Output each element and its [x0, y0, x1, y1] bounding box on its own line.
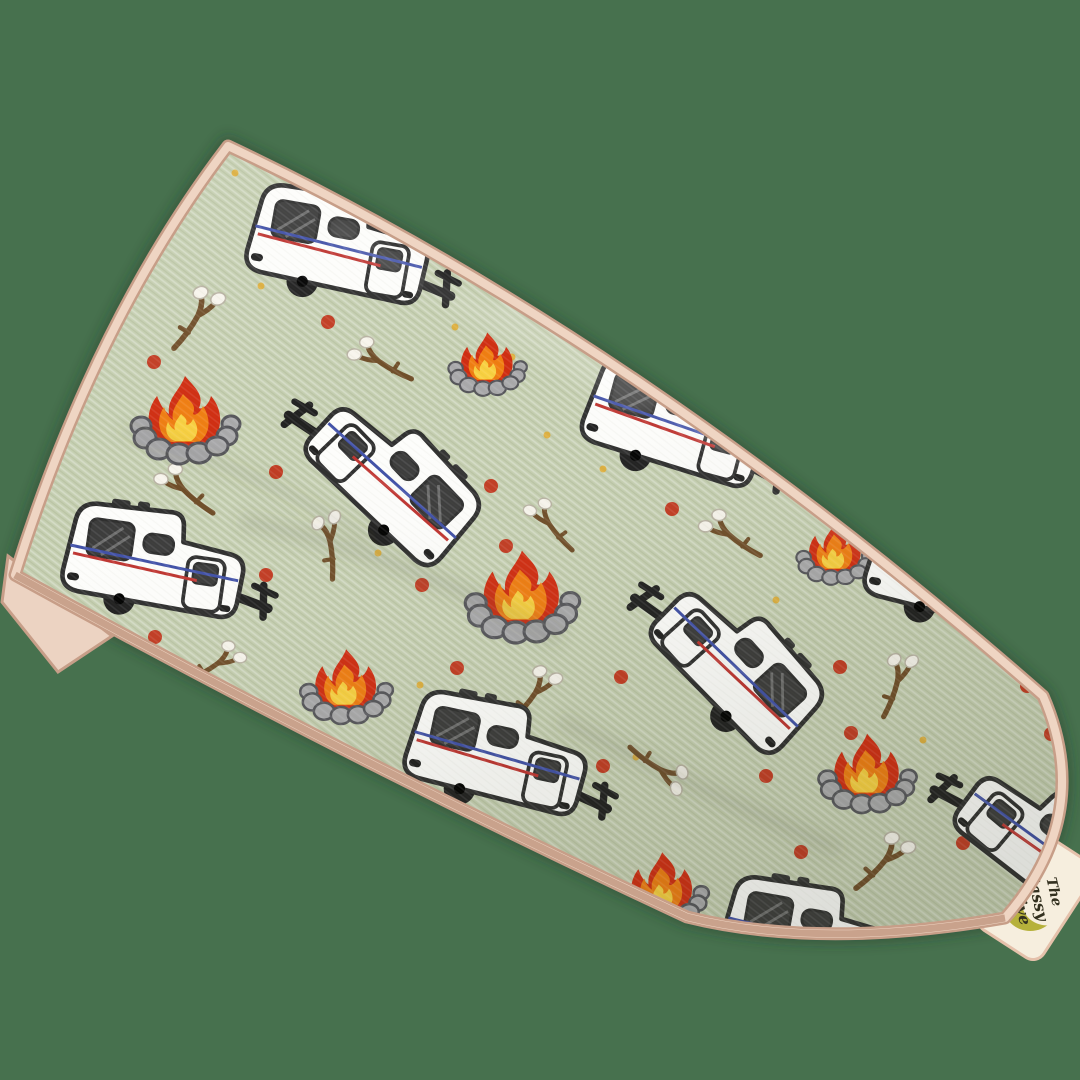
headband-photo: The Sassy Olive [0, 0, 1080, 1080]
product-photo: The Sassy Olive [0, 0, 1080, 1080]
